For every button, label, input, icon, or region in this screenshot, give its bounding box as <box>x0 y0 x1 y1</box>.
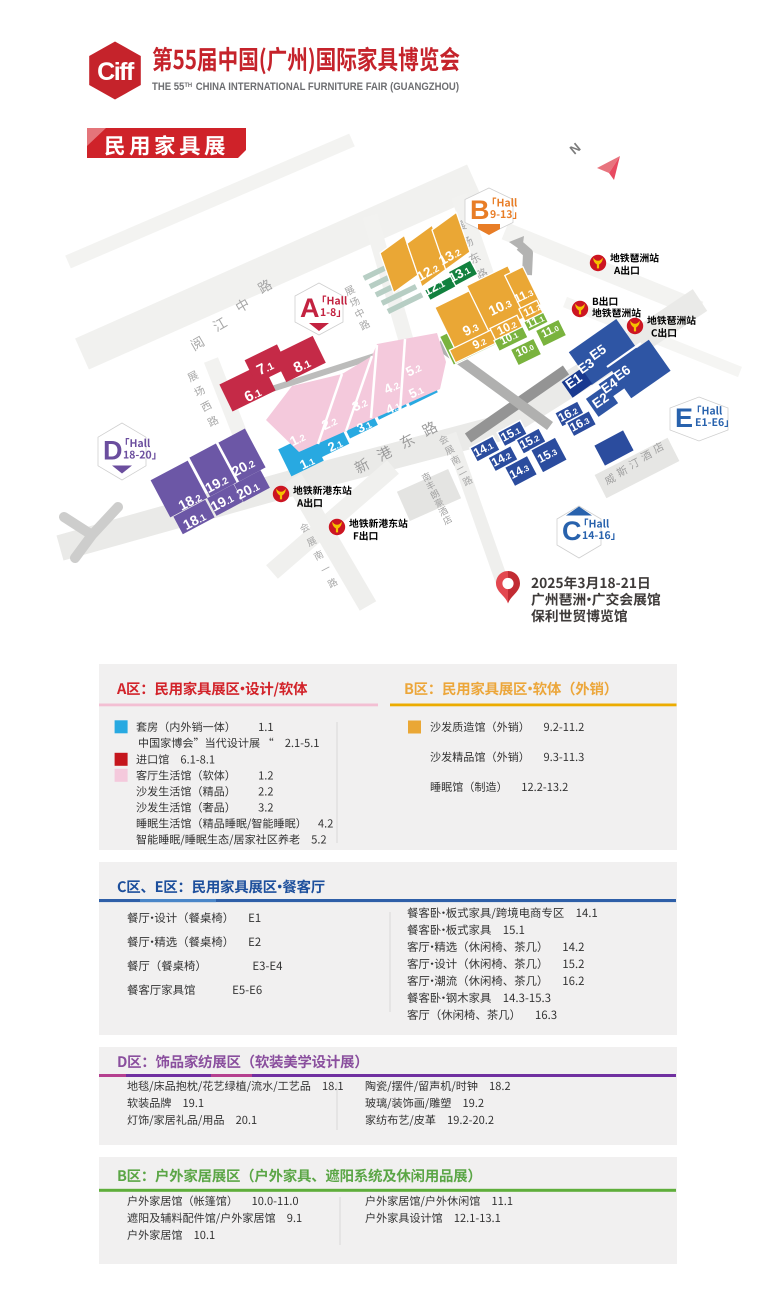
svg-text:E: E <box>675 403 693 433</box>
svg-text:D: D <box>103 436 123 466</box>
svg-text:Ciff: Ciff <box>97 58 135 86</box>
svg-text:N: N <box>567 140 584 158</box>
svg-text:C: C <box>562 516 582 546</box>
svg-text:THE 55TH CHINA INTERNATIONAL F: THE 55TH CHINA INTERNATIONAL FURNITURE F… <box>152 81 459 93</box>
svg-text:A: A <box>300 293 320 323</box>
svg-text:B: B <box>470 195 490 225</box>
